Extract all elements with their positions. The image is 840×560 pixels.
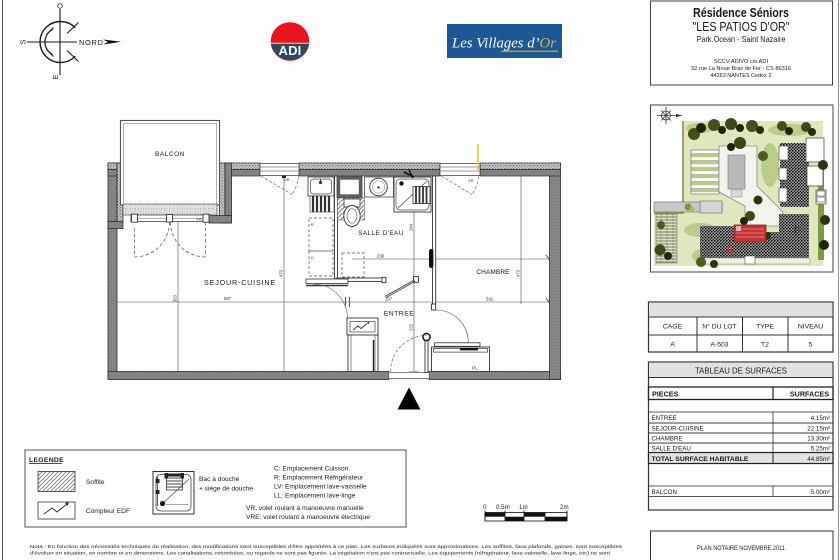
svg-text:LV: Emplacement lave-vaisselle: LV: Emplacement lave-vaisselle: [274, 484, 367, 491]
svg-text:Park.Ocean - Saint Nazaire: Park.Ocean - Saint Nazaire: [697, 35, 786, 44]
svg-text:Bac à douche: Bac à douche: [199, 476, 240, 483]
svg-text:E: E: [51, 74, 60, 79]
svg-text:A-503: A-503: [710, 342, 728, 349]
svg-text:13.30m²: 13.30m²: [807, 436, 830, 443]
svg-text:44263 NANTES Cedex 2: 44263 NANTES Cedex 2: [711, 73, 772, 79]
svg-text:44.85m²: 44.85m²: [807, 456, 830, 463]
svg-text:CHAMBRE: CHAMBRE: [652, 436, 683, 443]
svg-text:Résidence Séniors: Résidence Séniors: [693, 6, 789, 20]
svg-text:S: S: [19, 39, 28, 44]
svg-text:C: C: [311, 255, 314, 260]
svg-text:A: A: [726, 244, 734, 256]
svg-text:567: 567: [224, 296, 232, 301]
svg-text:5: 5: [809, 342, 813, 349]
svg-text:CAGE: CAGE: [663, 324, 683, 331]
svg-text:22.15m²: 22.15m²: [807, 426, 830, 433]
svg-text:VR: VR: [284, 177, 290, 182]
svg-text:N° DU LOT: N° DU LOT: [702, 323, 736, 331]
svg-text:A: A: [670, 342, 675, 349]
svg-text:NORD: NORD: [79, 38, 103, 47]
svg-text:4.15m²: 4.15m²: [811, 415, 830, 422]
svg-text:VR: VR: [468, 178, 474, 183]
svg-text:LL: Emplacement lave-linge: LL: Emplacement lave-linge: [274, 493, 356, 500]
svg-text:"LES PATIOS D'OR": "LES PATIOS D'OR": [693, 20, 790, 34]
svg-text:0.5m: 0.5m: [496, 504, 510, 511]
svg-text:VR: volet roulant à manoeuvre: VR: volet roulant à manoeuvre manuelle: [246, 505, 364, 512]
svg-text:PLAN NOTAIRE NOVEMBRE 2011: PLAN NOTAIRE NOVEMBRE 2011: [697, 545, 785, 552]
svg-text:5.00m²: 5.00m²: [811, 489, 830, 496]
svg-text:SALLE D'EAU: SALLE D'EAU: [652, 446, 691, 453]
svg-text:1m: 1m: [519, 504, 528, 511]
svg-text:592: 592: [486, 297, 494, 302]
svg-text:+ siège de douche: + siège de douche: [199, 486, 253, 493]
svg-text:O: O: [57, 2, 63, 11]
svg-text:VR1: VR1: [196, 217, 205, 222]
svg-text:PL.: PL.: [472, 366, 479, 372]
svg-text:222: 222: [409, 323, 414, 331]
svg-text:SEJOUR-CUISINE: SEJOUR-CUISINE: [652, 426, 704, 433]
svg-text:Nota : En fonction des nécessi: Nota : En fonction des nécessités techni…: [30, 544, 623, 549]
svg-text:BALCON: BALCON: [652, 489, 677, 496]
svg-text:CHAMBRE: CHAMBRE: [476, 269, 510, 276]
svg-text:NIVEAU: NIVEAU: [798, 324, 823, 331]
svg-text:VRE: volet roulant à manoeuvre: VRE: volet roulant à manoeuvre électriqu…: [246, 514, 370, 521]
svg-text:TABLEAU DE SURFACES: TABLEAU DE SURFACES: [695, 366, 787, 376]
svg-text:TOTAL SURFACE HABITABLE: TOTAL SURFACE HABITABLE: [652, 456, 749, 463]
svg-text:Compteur EDF: Compteur EDF: [86, 508, 130, 515]
svg-text:Soffite: Soffite: [86, 479, 105, 486]
svg-text:R: R: [311, 222, 314, 227]
svg-text:LEGENDE: LEGENDE: [29, 457, 64, 464]
svg-text:ENTREE: ENTREE: [652, 415, 677, 422]
svg-text:244: 244: [409, 223, 414, 231]
svg-text:SEJOUR-CUISINE: SEJOUR-CUISINE: [204, 278, 276, 287]
svg-text:353: 353: [173, 294, 178, 302]
svg-text:0: 0: [483, 504, 487, 511]
svg-text:473: 473: [279, 269, 284, 277]
svg-text:5.25m²: 5.25m²: [811, 446, 830, 453]
svg-text:2m: 2m: [560, 504, 569, 511]
svg-text:ADI: ADI: [279, 43, 302, 58]
svg-text:238: 238: [377, 254, 385, 259]
svg-text:ENTREE: ENTREE: [384, 311, 415, 318]
svg-text:32 rue La Noue Bras de Fer - C: 32 rue La Noue Bras de Fer - CS 86316: [691, 66, 791, 72]
svg-text:R: Emplacement Réfrigérateur: R: Emplacement Réfrigérateur: [274, 475, 364, 482]
svg-text:C: Emplacement Cuisson: C: Emplacement Cuisson: [274, 466, 349, 473]
svg-text:T2: T2: [761, 342, 769, 349]
svg-text:B: B: [794, 225, 800, 235]
svg-text:473: 473: [516, 269, 521, 277]
svg-text:SURFACES: SURFACES: [790, 390, 829, 399]
svg-text:SCCV ADIVO c/o ADI: SCCV ADIVO c/o ADI: [714, 59, 768, 65]
svg-text:PIECES: PIECES: [652, 390, 679, 399]
svg-text:Les Villages d’Or: Les Villages d’Or: [451, 36, 556, 52]
svg-text:TYPE: TYPE: [756, 324, 774, 331]
svg-text:BALCON: BALCON: [155, 151, 185, 158]
svg-text:d'évoluer en situation, en nom: d'évoluer en situation, en nombre et en …: [30, 551, 611, 556]
svg-text:SALLE D'EAU: SALLE D'EAU: [358, 230, 404, 237]
